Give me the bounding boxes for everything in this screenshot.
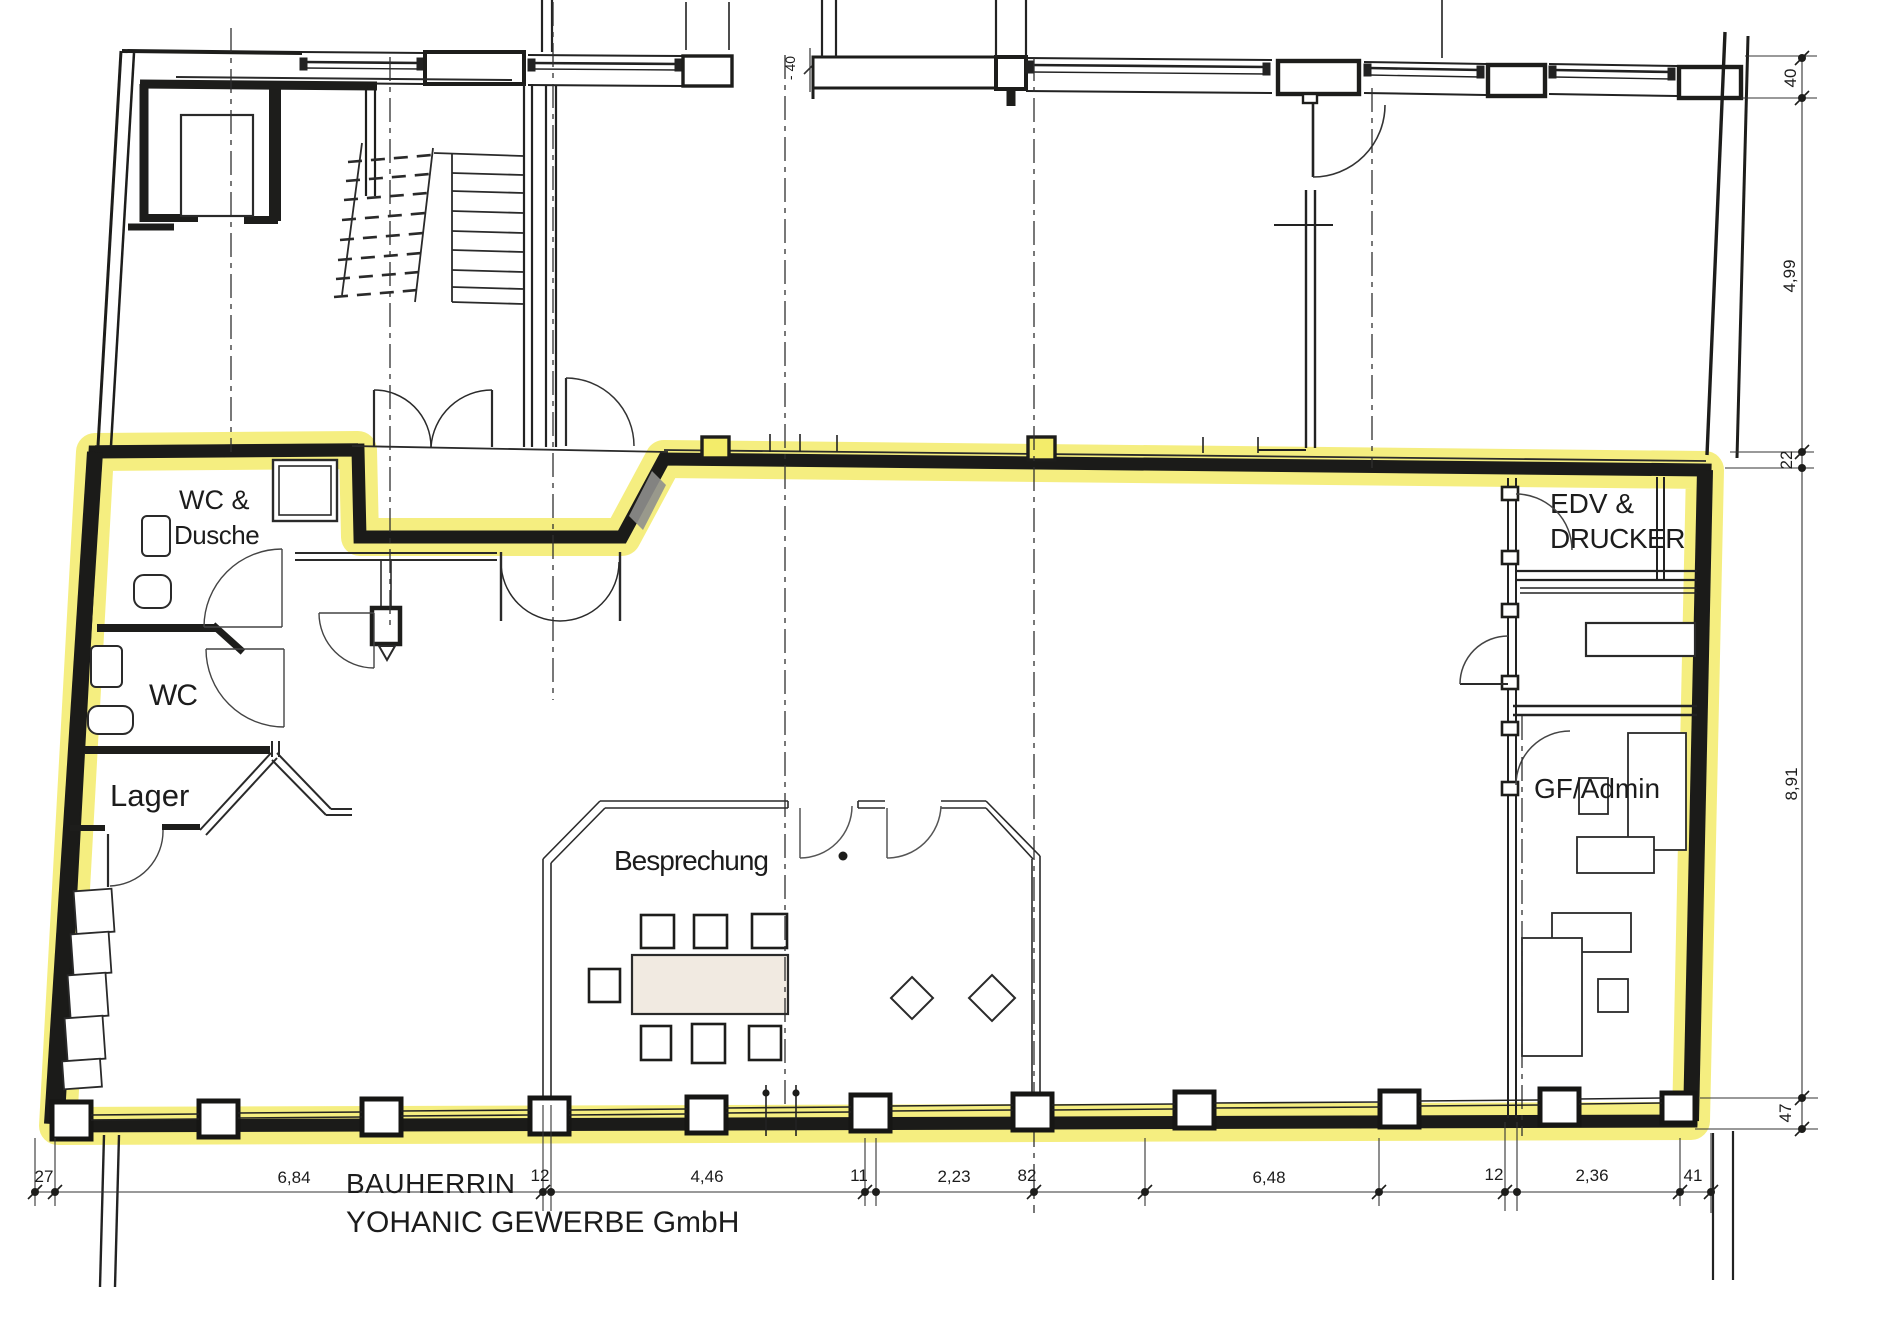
svg-text:6,48: 6,48	[1252, 1168, 1285, 1187]
svg-text:27: 27	[35, 1167, 54, 1186]
svg-text:Besprechung: Besprechung	[614, 845, 768, 876]
svg-text:2,23: 2,23	[937, 1167, 970, 1186]
svg-text:6,84: 6,84	[277, 1168, 310, 1187]
svg-text:12: 12	[1485, 1165, 1504, 1184]
svg-text:WC &: WC &	[179, 485, 250, 515]
svg-text:8,91: 8,91	[1782, 767, 1801, 800]
svg-text:Lager: Lager	[110, 778, 189, 813]
svg-text:BAUHERRIN: BAUHERRIN	[346, 1168, 515, 1199]
svg-text:40: 40	[1781, 69, 1800, 88]
svg-text:47: 47	[1776, 1104, 1795, 1123]
svg-text:82: 82	[1018, 1166, 1037, 1185]
svg-text:Dusche: Dusche	[174, 520, 259, 550]
svg-text:WC: WC	[149, 679, 197, 712]
svg-text:GF/Admin: GF/Admin	[1534, 773, 1660, 804]
svg-text:12: 12	[531, 1166, 550, 1185]
svg-text:4,46: 4,46	[690, 1167, 723, 1186]
svg-text:2,36: 2,36	[1575, 1166, 1608, 1185]
svg-text:EDV &: EDV &	[1550, 488, 1634, 519]
svg-text:YOHANIC GEWERBE GmbH: YOHANIC GEWERBE GmbH	[346, 1206, 739, 1239]
svg-text:41: 41	[1684, 1166, 1703, 1185]
svg-text:4,99: 4,99	[1780, 259, 1799, 292]
svg-text:22: 22	[1777, 451, 1796, 470]
svg-text:11: 11	[850, 1166, 868, 1185]
